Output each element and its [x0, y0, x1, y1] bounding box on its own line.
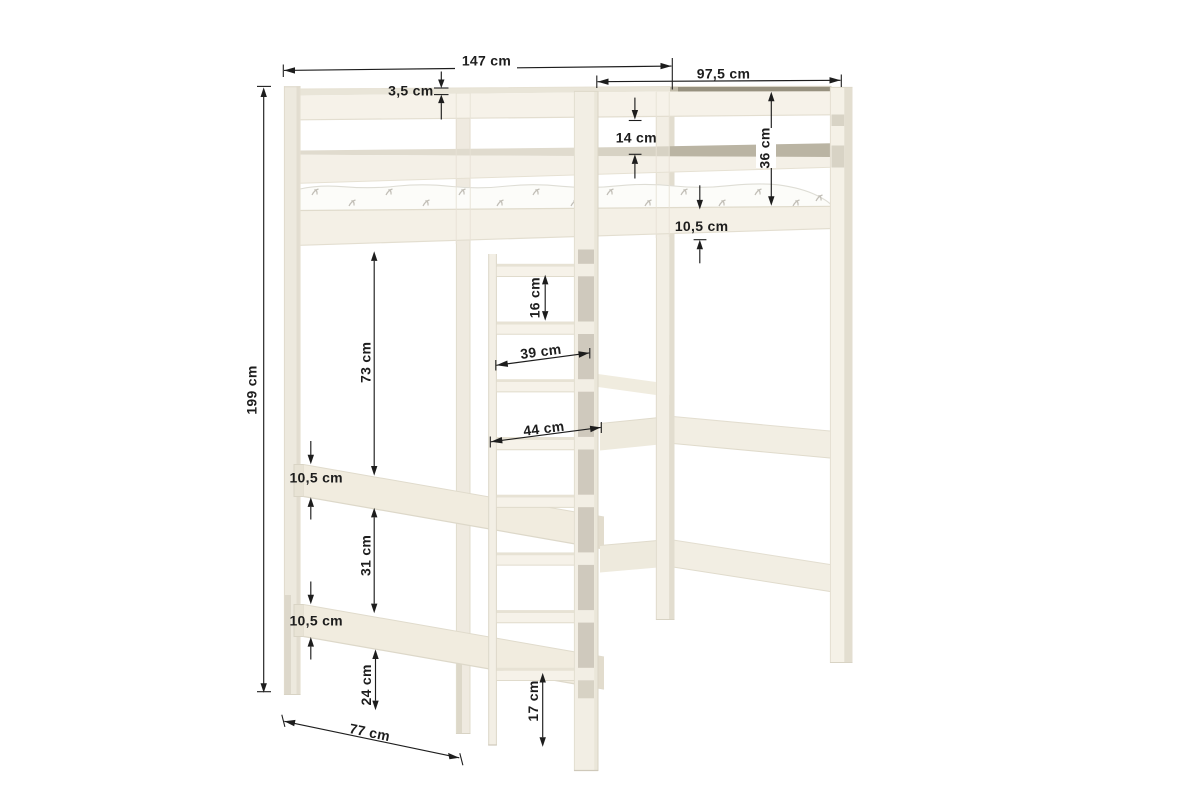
svg-text:73 cm: 73 cm	[358, 342, 374, 383]
svg-text:10,5 cm: 10,5 cm	[289, 470, 342, 486]
svg-text:10,5 cm: 10,5 cm	[675, 218, 728, 234]
svg-text:199 cm: 199 cm	[244, 365, 260, 414]
svg-text:147 cm: 147 cm	[462, 52, 511, 68]
svg-text:10,5 cm: 10,5 cm	[289, 613, 342, 629]
svg-text:16 cm: 16 cm	[527, 277, 543, 318]
svg-text:24 cm: 24 cm	[358, 664, 374, 705]
svg-text:17 cm: 17 cm	[525, 680, 541, 721]
svg-text:14 cm: 14 cm	[616, 129, 657, 145]
svg-text:36 cm: 36 cm	[757, 127, 773, 168]
svg-text:31 cm: 31 cm	[358, 535, 374, 576]
svg-text:97,5 cm: 97,5 cm	[697, 65, 750, 81]
svg-text:3,5 cm: 3,5 cm	[388, 82, 433, 98]
